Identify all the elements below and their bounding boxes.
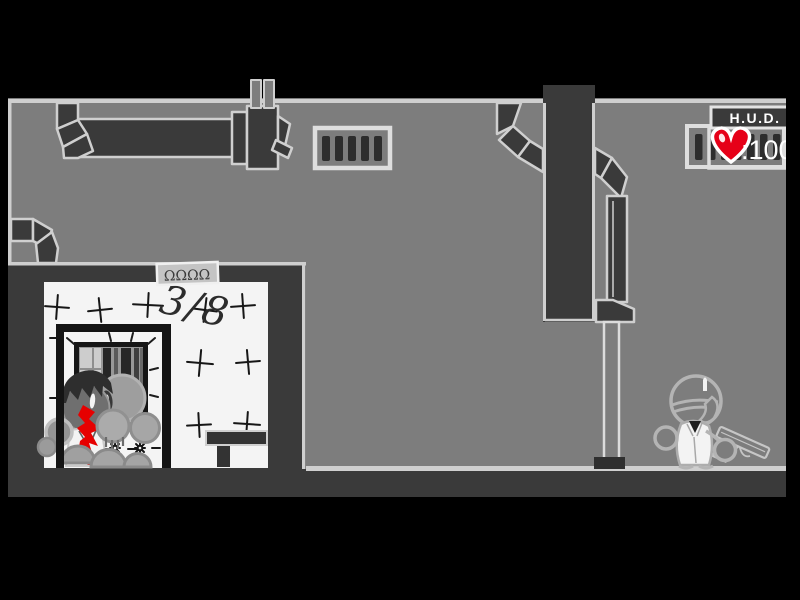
cell-room: 3/8 (38, 262, 268, 468)
duct-flange (232, 112, 247, 164)
hud-title: H.U.D. (730, 110, 781, 126)
duct-run (76, 119, 236, 157)
riser-pipe (251, 80, 261, 108)
riser-pipe (264, 80, 274, 108)
helmet-light-icon (703, 378, 707, 392)
ceiling-line (8, 99, 786, 103)
skull-dome (124, 454, 151, 467)
skull (97, 410, 129, 442)
duct-junction-box (247, 106, 278, 169)
game-scene[interactable]: 3/8 (0, 0, 800, 600)
game-stage[interactable]: 3/8 (0, 0, 800, 600)
pillar-body (543, 85, 595, 322)
skull (38, 438, 56, 456)
cell-sign-text: ΩΩΩΩ (164, 267, 211, 285)
border-bottom (0, 497, 800, 600)
floor-pipe (604, 322, 619, 460)
duct-elbow-seg (11, 219, 33, 241)
health-value: :100 (741, 135, 794, 165)
lower-wall-right-line (302, 262, 306, 469)
skull (131, 414, 160, 443)
pipe-base (594, 457, 625, 469)
agent-arm (655, 427, 677, 449)
vent-grate-center (315, 128, 390, 168)
agent-hand (715, 440, 736, 461)
floor-line (304, 466, 786, 471)
cell-sign: ΩΩΩΩ (157, 262, 219, 285)
